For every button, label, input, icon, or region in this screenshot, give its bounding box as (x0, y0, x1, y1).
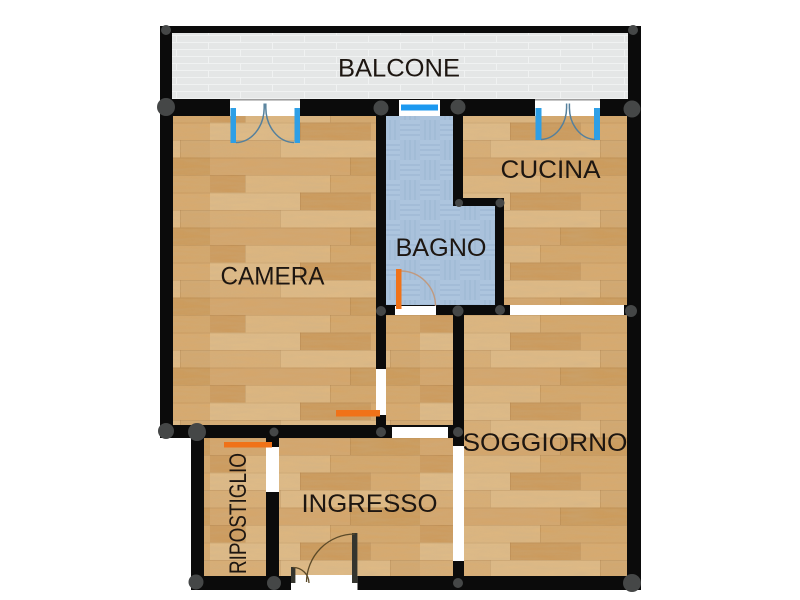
svg-text:BALCONE: BALCONE (338, 55, 460, 83)
svg-text:RIPOSTIGLIO: RIPOSTIGLIO (225, 453, 252, 574)
svg-text:SOGGIORNO: SOGGIORNO (463, 429, 628, 457)
svg-text:CAMERA: CAMERA (221, 263, 325, 291)
svg-text:CUCINA: CUCINA (501, 156, 601, 184)
svg-text:BAGNO: BAGNO (396, 234, 487, 262)
svg-text:INGRESSO: INGRESSO (302, 490, 438, 518)
